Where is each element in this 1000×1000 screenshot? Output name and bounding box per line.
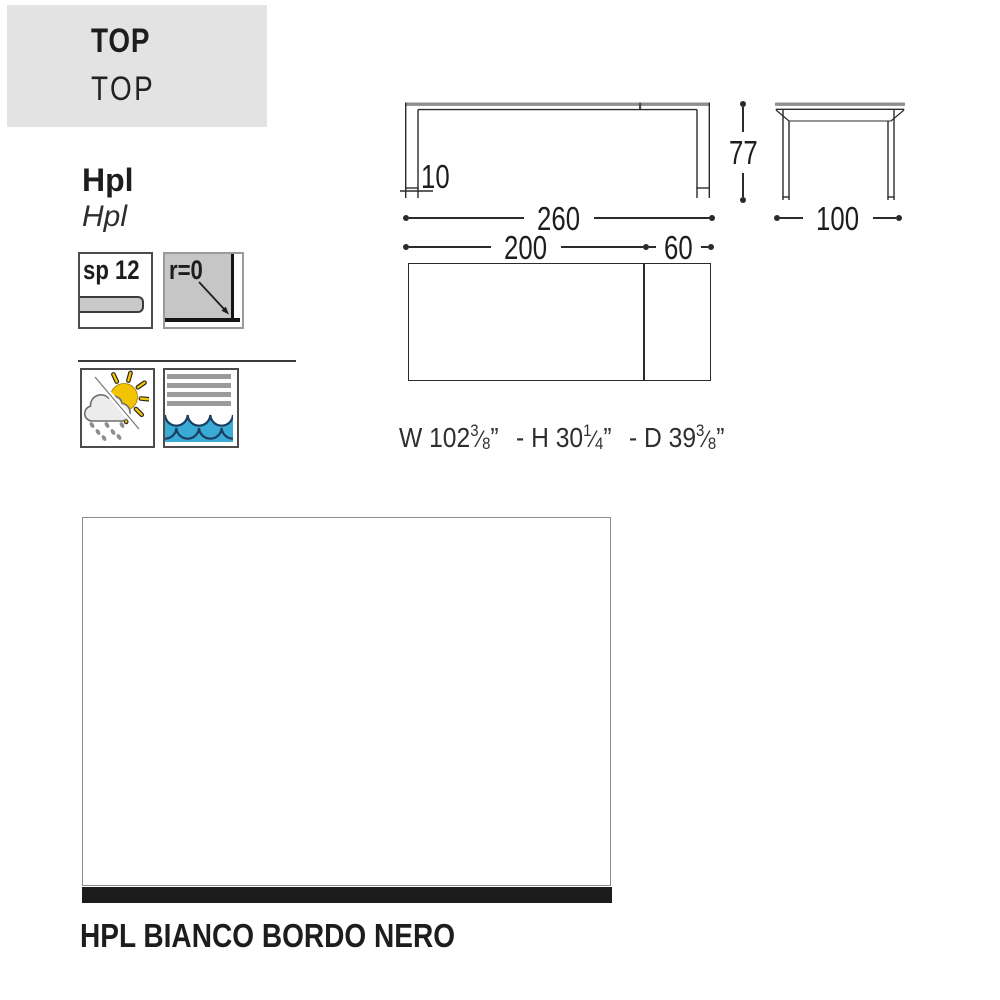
- weather-icon-graphic: [82, 370, 149, 442]
- imperial-height: - H 301⁄4”: [516, 422, 612, 453]
- sun-cloud-rain-icon: [80, 368, 155, 448]
- header-panel: TOP TOP: [7, 5, 267, 127]
- panel-thickness-icon: sp 12: [78, 252, 153, 329]
- stripe: [167, 383, 231, 388]
- corner-radius-icon: r=0: [163, 252, 244, 329]
- extension-dimension: 60: [649, 230, 714, 264]
- side-height-dim: 77: [729, 136, 758, 169]
- dim-line: [873, 217, 896, 219]
- material-name: Hpl: [82, 162, 134, 199]
- imperial-width: W 1023⁄8”: [399, 422, 499, 453]
- finish-swatch-black-edge: [82, 887, 612, 903]
- dim-line: [742, 107, 744, 132]
- dim-dot: [740, 197, 746, 203]
- dim-line: [742, 173, 744, 198]
- finish-label: HPL BIANCO BORDO NERO: [80, 917, 521, 955]
- page-subtitle: TOP: [91, 70, 155, 109]
- divider-line: [78, 360, 296, 362]
- side-view-drawing: [770, 100, 905, 205]
- dim-line: [409, 246, 491, 248]
- dim-line: [649, 246, 656, 248]
- thickness-bar: [78, 296, 144, 313]
- top-view-drawing: [408, 263, 711, 381]
- dim-line: [409, 217, 524, 219]
- top-length-dim: 200: [505, 231, 548, 264]
- height-dimension: 77: [726, 101, 760, 203]
- length-dimension: 200: [403, 230, 649, 264]
- radius-arrow-icon: [165, 254, 242, 327]
- extension-divider-line: [643, 264, 645, 380]
- page-title: TOP: [91, 22, 150, 61]
- dim-line: [701, 246, 708, 248]
- top-extension-dim: 60: [664, 231, 693, 264]
- dim-line: [561, 246, 643, 248]
- stripe: [167, 374, 231, 379]
- material-name-italic: Hpl: [82, 200, 127, 234]
- dim-dot: [709, 215, 715, 221]
- side-depth-dim: 100: [817, 202, 860, 235]
- dim-line: [780, 217, 803, 219]
- imperial-dimensions: W 1023⁄8” - H 301⁄4” - D 393⁄8”: [399, 421, 769, 454]
- depth-dimension: 100: [774, 201, 902, 235]
- dim-line: [594, 217, 709, 219]
- spec-sheet: TOP TOP Hpl Hpl sp 12 r=0: [0, 0, 1000, 1000]
- imperial-depth: - D 393⁄8”: [629, 422, 725, 453]
- dim-dot: [708, 244, 714, 250]
- stripe: [167, 392, 231, 397]
- finish-swatch: [82, 517, 611, 886]
- front-leg-dim: 10: [417, 160, 454, 193]
- waves-icon: [163, 368, 239, 448]
- water-graphic: [165, 406, 233, 442]
- thickness-label: sp 12: [83, 255, 152, 286]
- dim-dot: [896, 215, 902, 221]
